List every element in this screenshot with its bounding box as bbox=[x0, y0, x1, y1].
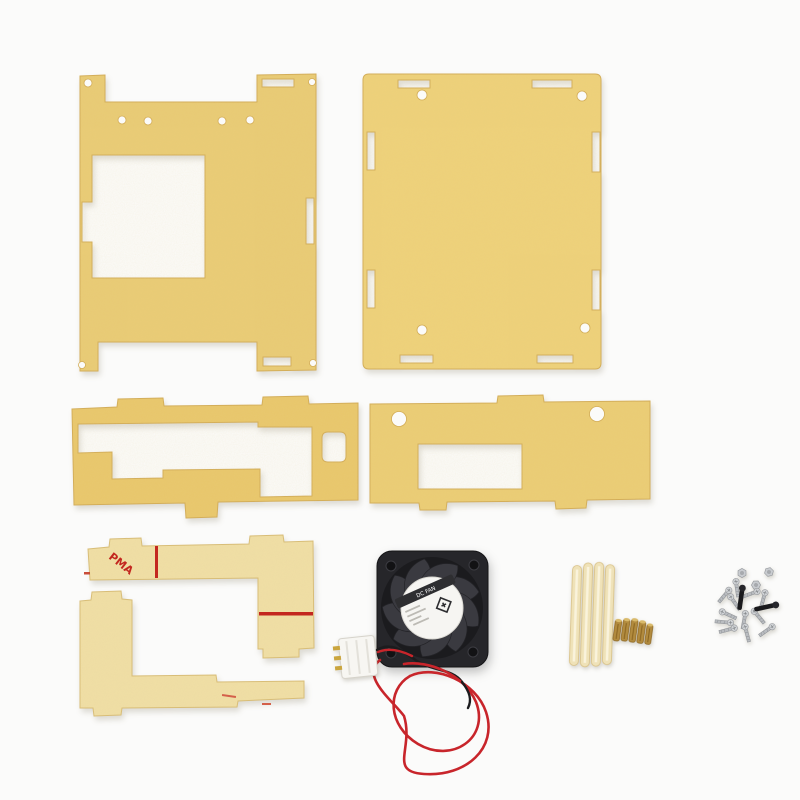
hex-nut bbox=[738, 568, 746, 577]
standoff-rod bbox=[580, 563, 593, 667]
screw bbox=[758, 622, 777, 638]
standoff-rod bbox=[602, 565, 614, 665]
standoff-rod bbox=[591, 562, 604, 666]
screw bbox=[718, 624, 738, 635]
screw-pile bbox=[715, 567, 780, 643]
red-mark-line bbox=[259, 612, 313, 616]
screw bbox=[741, 623, 752, 643]
red-speck bbox=[84, 572, 90, 575]
brass-spacer bbox=[644, 623, 653, 645]
red-mark-line bbox=[155, 546, 158, 578]
photo-scene: PMA DC FAN bbox=[0, 0, 800, 800]
fan-connector bbox=[332, 635, 378, 679]
black-wire bbox=[462, 682, 470, 708]
screw bbox=[715, 618, 734, 626]
red-wire-coil bbox=[374, 660, 489, 774]
product-photo: PMA DC FAN bbox=[0, 0, 800, 800]
standoff-rod bbox=[569, 565, 581, 665]
black-screw bbox=[754, 601, 780, 613]
screw bbox=[718, 608, 738, 622]
standoff-rods bbox=[569, 561, 615, 667]
hex-nut bbox=[764, 567, 774, 578]
brass-spacers bbox=[613, 616, 654, 646]
red-speck bbox=[262, 703, 271, 705]
acrylic-panels: PMA bbox=[0, 0, 800, 800]
